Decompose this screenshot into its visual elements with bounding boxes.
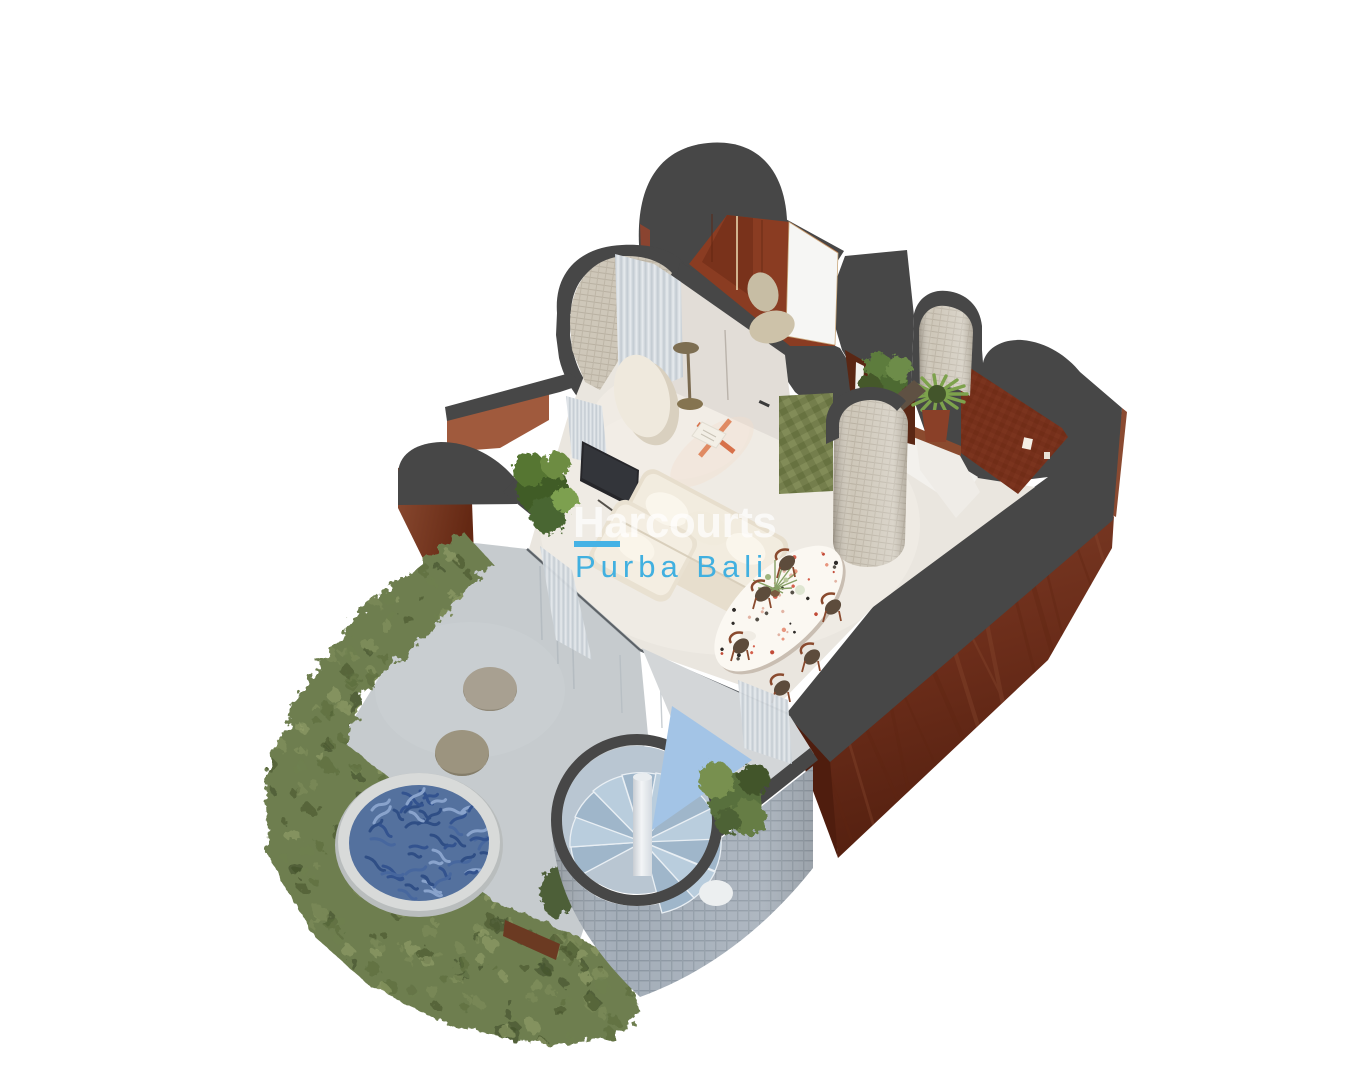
svg-text:Harcourts: Harcourts [573,498,776,547]
svg-text:Purba Bali: Purba Bali [575,549,768,584]
